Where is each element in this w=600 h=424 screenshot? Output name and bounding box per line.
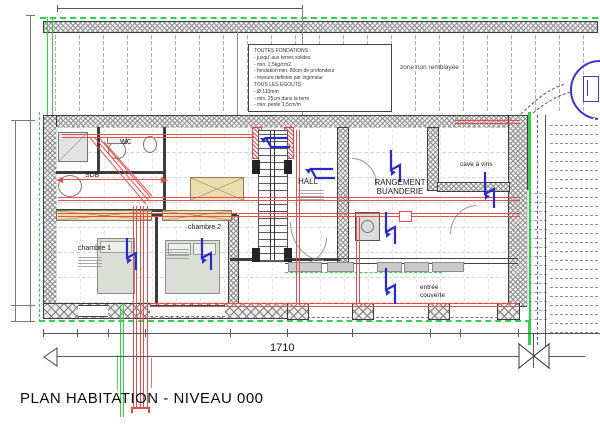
room-label-entree-line2: couverte xyxy=(420,292,445,300)
note-line: - min. 2,5kg/cm2 xyxy=(254,62,391,69)
dim-tick xyxy=(11,120,35,121)
stair-jamb-black xyxy=(284,160,292,174)
dim-tick xyxy=(77,329,78,337)
direction-arrow-entree xyxy=(383,266,398,304)
dim-tick xyxy=(108,329,109,337)
pipe-end-tick xyxy=(148,407,150,413)
dim-line-segments xyxy=(43,333,600,334)
direction-arrow-cave xyxy=(482,170,497,208)
drain-field-east xyxy=(548,118,600,333)
section-marker-left xyxy=(42,347,58,367)
note-line: TOUS LES EGOUTS : xyxy=(254,82,391,89)
window-sill xyxy=(432,262,464,272)
pipe-end-tick xyxy=(131,407,133,413)
retaining-wall-top xyxy=(43,21,598,33)
drain-dashdot-east xyxy=(537,115,538,345)
pipe-stair-vertical xyxy=(296,130,297,303)
porch-edge-dashed xyxy=(287,317,518,318)
room-label-chambre1: chambre 1 xyxy=(78,245,111,252)
note-line: - mesure definies par ingenieur xyxy=(254,75,391,82)
drain-line-top xyxy=(40,17,598,19)
boundary-line-east xyxy=(545,115,546,363)
heating-run-porch xyxy=(150,306,518,307)
floor-plan-canvas: TOUTES FONDATIONS : - jusqu' aux terres … xyxy=(0,0,600,424)
dim-tick xyxy=(43,329,44,337)
direction-arrow-chambre1 xyxy=(124,236,139,270)
room-info-chambre1 xyxy=(78,256,102,267)
room-label-hall: HALL xyxy=(298,177,318,186)
pipe-buanderie-vertical xyxy=(356,216,357,304)
room-info-chambre2 xyxy=(165,248,189,259)
dim-total-label: 1710 xyxy=(270,342,294,354)
room-label-cave: cave à vins xyxy=(460,161,493,168)
dim-line-left-inner xyxy=(30,15,31,322)
heating-run-2 xyxy=(58,213,520,214)
pipe-vertical-bundle xyxy=(147,206,148,408)
facade-drain-bottom xyxy=(39,320,531,322)
room-label-entree-line1: entrée xyxy=(420,284,445,292)
note-line: - Ø 110mm xyxy=(254,89,391,96)
foundation-notes-box: TOUTES FONDATIONS : - jusqu' aux terres … xyxy=(248,44,392,112)
room-label-wc: WC xyxy=(120,139,132,146)
grid-line-solid xyxy=(237,31,238,115)
dim-tick xyxy=(26,15,35,16)
room-label-rangement: RANGEMENT BUANDERIE xyxy=(356,178,444,196)
direction-arrow-chambre2 xyxy=(199,236,214,270)
section-marker-right xyxy=(517,342,551,370)
sdb-pipe-arrowheads xyxy=(56,176,168,184)
window-sill xyxy=(327,262,354,272)
room-label-chambre2: chambre 2 xyxy=(188,224,221,231)
dim-tick xyxy=(11,305,35,306)
pipe-top-run xyxy=(62,134,254,135)
wall-east xyxy=(508,115,528,307)
room-label-rangement-line2: BUANDERIE xyxy=(356,187,444,196)
pipe-stair-vertical xyxy=(299,130,300,303)
dim-tick xyxy=(518,329,519,337)
pipe-vertical-bundle xyxy=(143,206,144,408)
note-line: - min. pente 1,5cm/m xyxy=(254,102,391,109)
dim-tick xyxy=(460,329,461,337)
wall-hall-rangement xyxy=(337,127,349,264)
direction-arrow-rangement-2 xyxy=(383,210,398,244)
dim-line-left-outer xyxy=(15,120,16,322)
window-sill xyxy=(288,262,322,272)
direction-arrow-stairs xyxy=(258,135,290,150)
top-dimension-tick xyxy=(57,5,58,12)
dim-line-total xyxy=(45,356,585,357)
approval-stamp-inner xyxy=(583,76,599,102)
top-dimension-line xyxy=(57,8,303,9)
dim-tick xyxy=(230,329,231,337)
wall-west xyxy=(43,115,57,317)
page-title: PLAN HABITATION - NIVEAU 000 xyxy=(20,390,264,407)
dim-tick xyxy=(430,329,431,337)
note-line: TOUTES FONDATIONS : xyxy=(254,48,391,55)
room-label-sdb: SDB xyxy=(85,172,99,179)
window-sill xyxy=(404,262,429,272)
dim-tick xyxy=(145,329,146,337)
washing-machine-door xyxy=(361,220,374,233)
zone-label: zone non remblayée xyxy=(400,64,459,71)
dim-tick xyxy=(11,321,35,322)
green-drain-left-2 xyxy=(52,17,53,120)
wall-chambre-divider xyxy=(155,215,158,303)
heating-valve-box xyxy=(399,211,412,222)
approval-stamp-text-mark xyxy=(587,80,588,96)
stair-jamb-black xyxy=(252,248,260,262)
note-line: - jusqu' aux terres solides xyxy=(254,55,391,62)
pipe-northeast xyxy=(455,120,520,121)
green-drain-left-1 xyxy=(47,17,48,120)
pipe-vertical-bundle xyxy=(140,206,141,408)
pipe-label-mark xyxy=(151,358,152,388)
note-line: - min. 25cm dans la terre xyxy=(254,96,391,103)
room-info-hall xyxy=(298,189,324,200)
drain-label-mark xyxy=(117,355,118,390)
heating-run-1 xyxy=(58,200,520,201)
facade-drain-porch xyxy=(285,272,442,273)
stair-jamb-black xyxy=(252,160,260,174)
pipe-buanderie-vertical xyxy=(359,216,360,304)
heating-run-1 xyxy=(58,197,520,198)
wall-cave-south xyxy=(437,182,510,192)
room-label-entree: entrée couverte xyxy=(420,284,445,299)
dim-tick xyxy=(287,329,288,337)
note-line: - fondation min. 80cm de profondeur xyxy=(254,68,391,75)
pipe-northeast xyxy=(455,123,520,124)
heating-run-porch xyxy=(150,303,518,304)
window-south-1 xyxy=(78,305,108,317)
facade-drain-left xyxy=(39,112,40,322)
dim-tick xyxy=(352,329,353,337)
heating-run-2 xyxy=(58,216,520,217)
direction-arrow-rangement-1 xyxy=(388,148,403,182)
room-label-rangement-line1: RANGEMENT xyxy=(356,178,444,187)
